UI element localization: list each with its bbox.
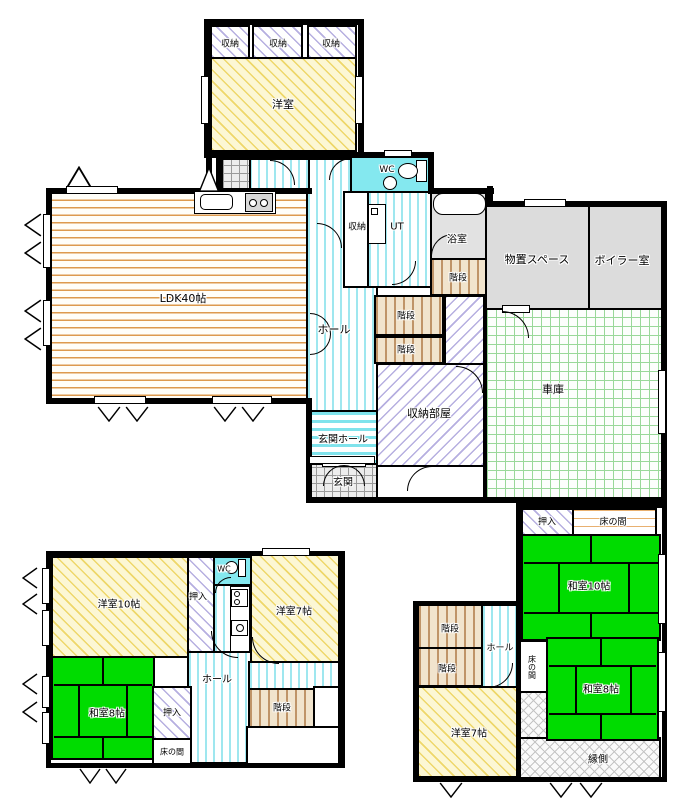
label-entrance: 玄関 (333, 474, 353, 489)
vent-triangle-symbol (22, 700, 38, 724)
label-western7-left: 洋室7帖 (276, 603, 312, 618)
window-symbol (212, 396, 272, 404)
window-symbol (43, 300, 51, 346)
burner-icon (234, 599, 240, 605)
burner-icon (249, 199, 257, 207)
window-symbol (42, 610, 50, 646)
label-stairs-right-upper: 階段 (441, 622, 459, 635)
vent-triangle-symbol (578, 782, 604, 798)
window-symbol (42, 676, 50, 708)
label-hall-right: ホール (486, 641, 513, 654)
vent-triangle-symbol (124, 406, 150, 422)
vent-triangle-symbol (96, 406, 122, 422)
storage-alcove (444, 295, 485, 365)
wall-segment (487, 201, 667, 207)
vent-triangle-symbol (22, 672, 38, 696)
label-bathroom: 浴室 (447, 231, 467, 246)
label-storage-space: 物置スペース (505, 251, 570, 267)
window-symbol (658, 652, 666, 712)
label-stairs-left: 階段 (273, 701, 291, 714)
label-oshiire-tall: 押入 (189, 590, 207, 603)
label-stairs-right-lower: 階段 (438, 662, 456, 675)
vent-triangle-symbol (240, 406, 266, 422)
label-closet-1: 収納 (221, 37, 239, 50)
label-garage: 車庫 (542, 381, 564, 397)
window-symbol (94, 396, 146, 404)
label-hall-main: ホール (318, 321, 351, 337)
vent-triangle-symbol (24, 212, 42, 238)
back-entrance-steps (221, 158, 251, 192)
room-closet-mid (343, 191, 370, 288)
vent-triangle-symbol (24, 240, 42, 266)
washer-detail (371, 208, 378, 215)
toilet-icon (398, 163, 418, 179)
vent-triangle-symbol (104, 768, 128, 784)
label-storage-room: 収納部屋 (407, 405, 451, 421)
wall-segment (661, 201, 667, 503)
label-tokonoma-left: 床の間 (160, 747, 184, 758)
window-symbol (43, 214, 51, 268)
label-entrance-hall: 玄関ホール (318, 431, 368, 446)
window-symbol (201, 76, 209, 124)
label-japanese8-left: 和室8帖 (89, 705, 125, 720)
floor-plan: 収納 収納 収納 洋室 WC 収納 UT 浴室 階段 物置スペース ボイラー室 … (0, 0, 698, 800)
window-symbol (658, 554, 666, 624)
entrance-step (309, 456, 375, 464)
annex-right-outline (516, 503, 667, 782)
window-symbol (524, 199, 566, 207)
label-western-upper: 洋室 (272, 96, 294, 112)
wall-segment (306, 404, 312, 503)
annex-left-outline (46, 551, 345, 768)
label-wc-annex: WC (217, 565, 231, 574)
label-ldk: LDK40帖 (160, 290, 207, 306)
wall-segment (46, 398, 312, 404)
label-stairs-c: 階段 (397, 343, 415, 356)
label-stairs-b: 階段 (397, 309, 415, 322)
label-hall-left: ホール (202, 671, 232, 686)
label-stairs-a: 階段 (449, 271, 467, 284)
bathtub-icon (433, 193, 486, 215)
burner-icon (260, 199, 268, 207)
vent-triangle-symbol (24, 326, 42, 352)
label-oshiire-left: 押入 (163, 706, 181, 719)
window-symbol (42, 568, 50, 604)
label-closet-2: 収納 (269, 37, 287, 50)
burner-icon (234, 591, 240, 597)
label-closet-mid: 収納 (348, 220, 366, 233)
vent-triangle-symbol (22, 566, 38, 590)
label-western7-right: 洋室7帖 (451, 725, 487, 740)
vent-triangle-symbol (22, 592, 38, 616)
washbasin-icon (383, 176, 397, 190)
window-symbol (262, 548, 310, 556)
annex-right-wing-outline (413, 601, 521, 782)
label-boiler: ボイラー室 (595, 252, 650, 268)
label-tokonoma-side: 床の間 (527, 655, 538, 679)
vent-triangle-symbol (438, 782, 464, 798)
vent-triangle-symbol (78, 768, 102, 784)
label-tokonoma-top: 床の間 (599, 515, 626, 528)
window-symbol (384, 150, 412, 157)
vent-triangle-symbol (24, 298, 42, 324)
label-japanese8-right: 和室8帖 (583, 681, 619, 696)
label-oshiire-right: 押入 (538, 515, 556, 528)
label-closet-3: 収納 (322, 37, 340, 50)
label-japanese10: 和室10帖 (568, 578, 611, 593)
label-wc-main: WC (379, 165, 394, 175)
label-veranda: 縁側 (588, 751, 608, 766)
label-western10: 洋室10帖 (98, 596, 141, 611)
window-symbol (66, 186, 118, 194)
vent-triangle-symbol (212, 406, 238, 422)
window-symbol (355, 76, 363, 124)
vent-triangle-symbol (548, 782, 574, 798)
toilet-icon (238, 559, 246, 577)
label-ut: UT (390, 222, 403, 233)
kitchen-sink-icon (200, 194, 233, 210)
window-symbol (658, 370, 666, 434)
window-symbol (42, 712, 50, 744)
vent-triangle-symbol (198, 166, 220, 192)
